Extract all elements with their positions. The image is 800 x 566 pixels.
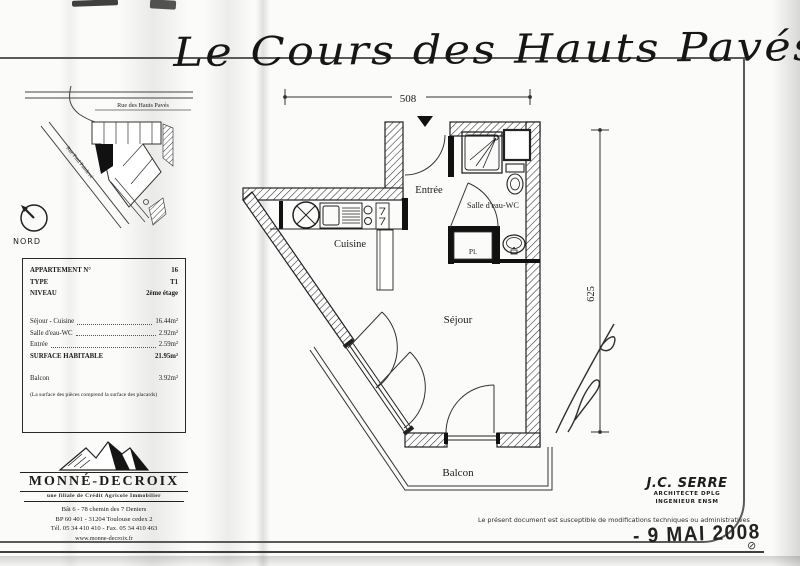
scanned-floorplan-document: { "title": "Le Cours des Hauts Pavés", "…	[0, 0, 800, 566]
brand-block: MONNÉ-DECROIX une filiale de Crédit Agri…	[16, 436, 192, 542]
date-stamp: - 9 MAI 2008	[633, 521, 762, 550]
area-value: 16.44m²	[155, 317, 178, 326]
room-label-bathroom: Salle d'eau-WC	[467, 201, 519, 210]
area-row: Entrée 2.59m²	[30, 340, 178, 349]
page-edge-shadow	[772, 0, 800, 566]
brand-address-line2: BP 60 401 - 31204 Toulouse cedex 2	[16, 515, 192, 525]
document-outer-border	[0, 551, 764, 553]
entry-arrow-icon	[417, 116, 433, 127]
total-label: SURFACE HABITABLE	[30, 352, 103, 361]
brand-address-line1: Bât 6 - 78 chemin des 7 Deniers	[16, 505, 192, 515]
area-label: Séjour - Cuisine	[30, 317, 74, 326]
surface-note: (La surface des pièces comprend la surfa…	[30, 392, 178, 399]
info-value: T1	[170, 278, 178, 287]
brand-address-line3: Tél. 05 34 410 410 - Fax. 05 34 410 463	[16, 524, 192, 534]
architect-title2: INGENIEUR ENSM	[612, 499, 762, 507]
info-value: 16	[171, 266, 178, 275]
dimension-width-value: 508	[400, 93, 417, 105]
balcony-row: Balcon 3.92m²	[30, 374, 178, 383]
room-label-entree: Entrée	[415, 185, 443, 196]
kitchen-sink-icon	[320, 203, 362, 228]
room-label-closet: Pl.	[469, 247, 477, 256]
room-label-living: Séjour	[444, 314, 473, 326]
apartment-info-panel: APPARTEMENT N° 16 TYPE T1 NIVEAU 2ème ét…	[22, 258, 186, 433]
balcony-outline	[310, 347, 552, 490]
balcony-value: 3.92m²	[159, 374, 178, 383]
room-label-balcony: Balcon	[442, 467, 474, 479]
architect-title1: ARCHITECTE DPLG	[612, 491, 762, 499]
map-street-top-label: Rue des Hauts Pavés	[117, 102, 169, 109]
brand-website: www.monne-decroix.fr	[16, 535, 192, 542]
handwritten-signature	[556, 324, 615, 433]
info-row: TYPE T1	[30, 278, 178, 287]
floor-plan: 508 625	[230, 80, 630, 525]
map-road-curve	[70, 86, 95, 122]
room-label-kitchen: Cuisine	[334, 239, 366, 250]
water-heater-icon	[504, 130, 530, 160]
brand-name: MONNÉ-DECROIX	[20, 472, 188, 492]
duct-chase	[377, 230, 393, 290]
area-row: Séjour - Cuisine 16.44m²	[30, 317, 178, 326]
balcony-door-threshold	[444, 433, 500, 444]
balcony-label: Balcon	[30, 374, 49, 383]
door-swings	[348, 135, 498, 433]
electric-panel-icon	[376, 203, 389, 229]
scan-smudge	[0, 556, 800, 566]
area-label: Salle d'eau-WC	[30, 329, 73, 338]
scan-blot	[72, 0, 118, 7]
compass-label: NORD	[13, 237, 41, 246]
info-label: TYPE	[30, 278, 48, 287]
north-compass	[12, 200, 56, 240]
info-label: APPARTEMENT N°	[30, 266, 91, 275]
map-hatch-area	[163, 124, 173, 166]
burner-icon	[365, 218, 372, 225]
scan-blot	[150, 0, 176, 10]
architect-name: J.C. SERRE	[612, 476, 762, 491]
mountain-logo-icon	[56, 436, 152, 472]
architect-block: J.C. SERRE ARCHITECTE DPLG INGENIEUR ENS…	[612, 476, 762, 507]
toilet-icon	[506, 164, 524, 172]
window-glazing	[344, 340, 413, 434]
area-label: Entrée	[30, 340, 48, 349]
info-value: 2ème étage	[146, 289, 178, 298]
dimension-height-value: 625	[586, 286, 597, 302]
map-hatch-area	[149, 198, 166, 225]
info-row: NIVEAU 2ème étage	[30, 289, 178, 298]
area-value: 2.59m²	[159, 340, 178, 349]
area-row: Salle d'eau-WC 2.92m²	[30, 329, 178, 338]
brand-subtitle: une filiale de Crédit Agricole Immobilie…	[24, 493, 184, 502]
info-row: APPARTEMENT N° 16	[30, 266, 178, 275]
area-value: 2.92m²	[159, 329, 178, 338]
dimension-height	[591, 129, 609, 434]
info-label: NIVEAU	[30, 289, 57, 298]
total-value: 21.95m²	[155, 352, 178, 361]
burner-icon	[364, 206, 372, 214]
page-title: Le Cours des Hauts Pavés	[173, 24, 800, 76]
total-row: SURFACE HABITABLE 21.95m²	[30, 352, 178, 361]
